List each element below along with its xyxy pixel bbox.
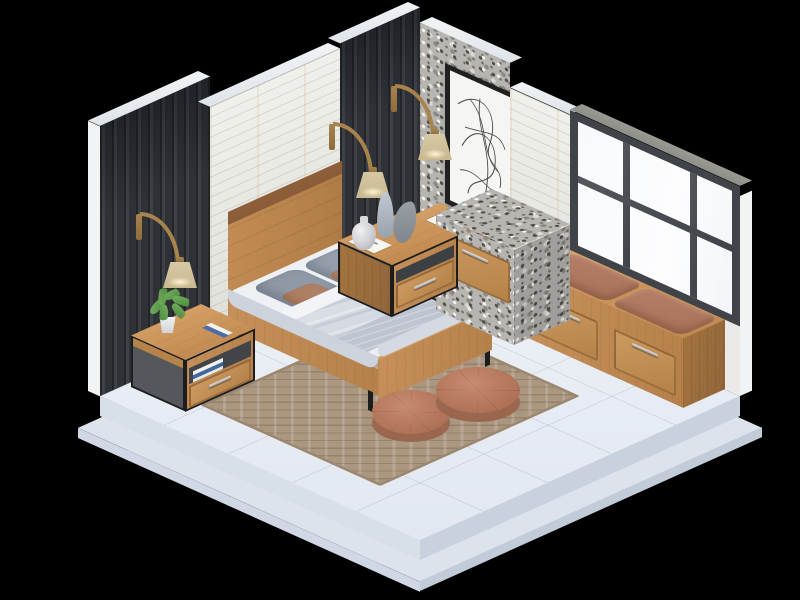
- wall-lamp-corner-mount: [391, 86, 397, 112]
- wall-lamp-left-mount: [136, 214, 142, 240]
- left-wall-end-cap: [88, 121, 100, 396]
- bed-leg-foot-right: [485, 351, 490, 367]
- wall-lamp-mid-mount: [329, 124, 335, 150]
- pouf-2-top: [436, 367, 520, 413]
- plant-leaf: [158, 304, 170, 321]
- bedroom-isometric-render: [0, 0, 800, 600]
- right-wall-end-cap: [740, 191, 752, 396]
- potted-plant-leaves: [146, 290, 194, 326]
